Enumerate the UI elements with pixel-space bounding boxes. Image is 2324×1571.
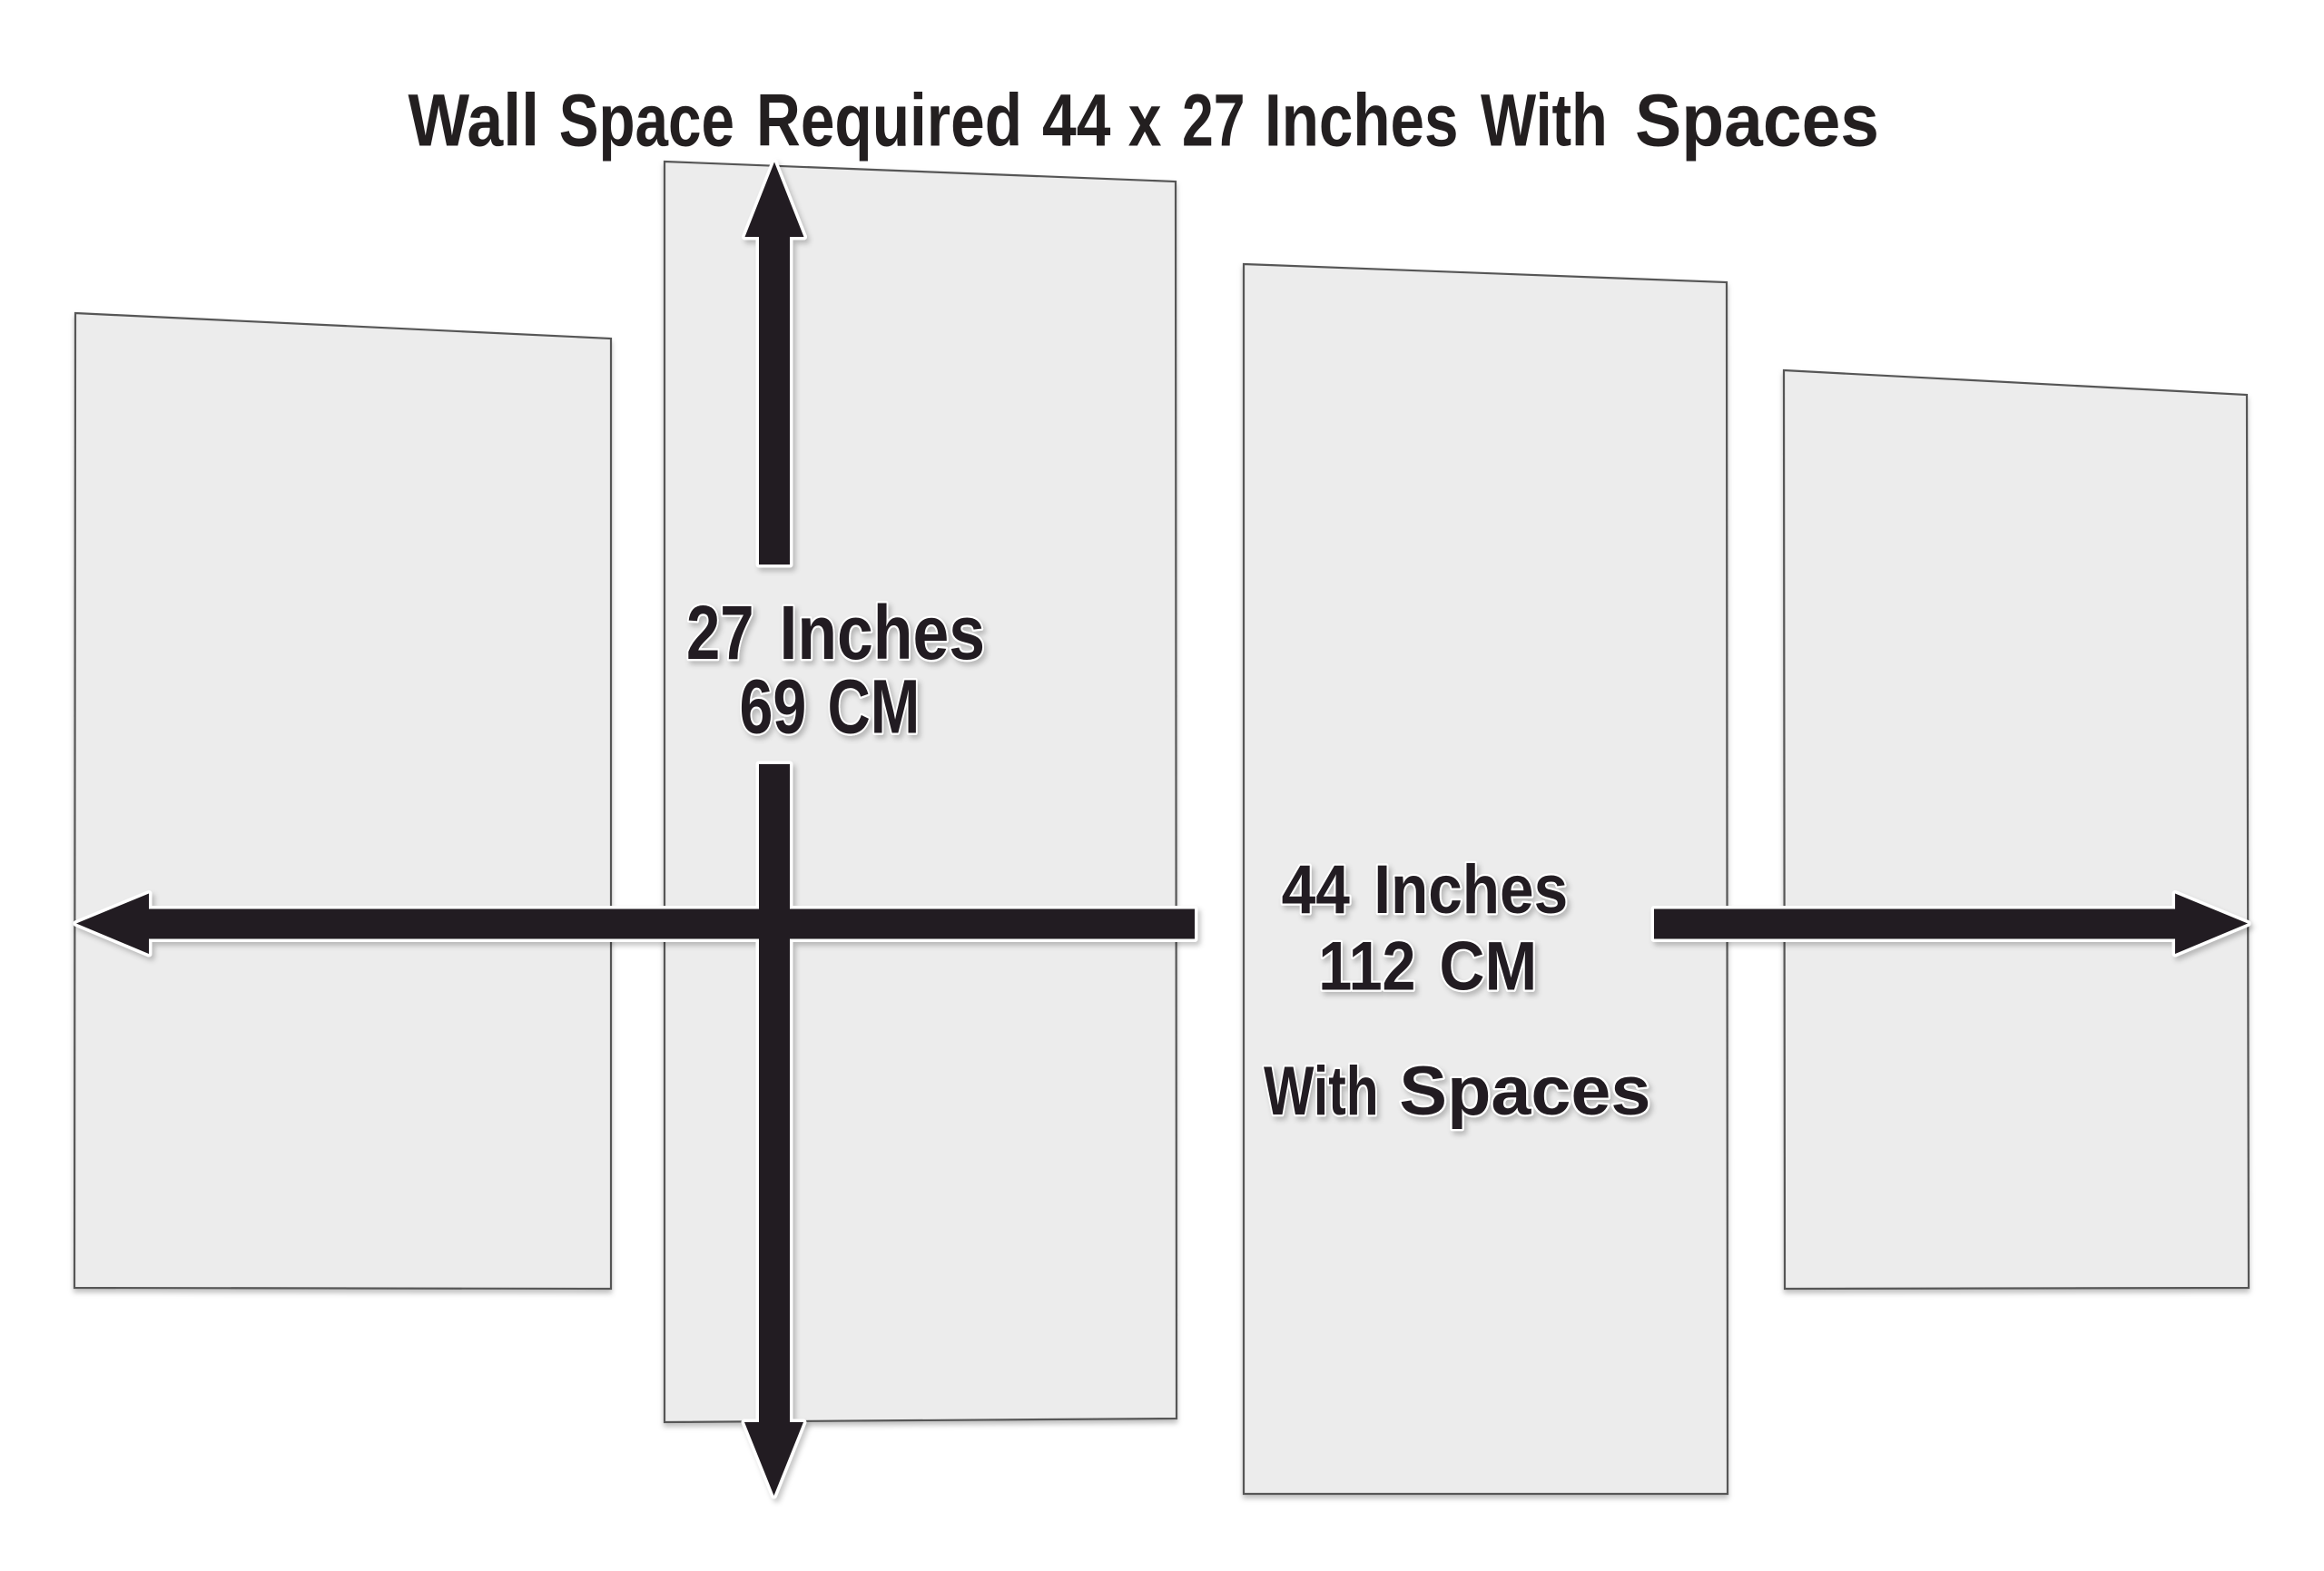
svg-text:Inches: Inches — [1265, 80, 1459, 162]
svg-text:112: 112 — [1318, 928, 1415, 1006]
svg-text:Required: Required — [756, 80, 1022, 162]
svg-text:With: With — [1481, 80, 1608, 162]
svg-text:Spaces: Spaces — [1635, 80, 1879, 162]
svg-text:Space: Space — [559, 80, 734, 162]
svg-text:CM: CM — [1439, 928, 1537, 1006]
svg-text:Spaces: Spaces — [1399, 1053, 1650, 1130]
svg-text:CM: CM — [828, 664, 921, 750]
svg-text:With: With — [1264, 1053, 1379, 1130]
svg-text:Wall: Wall — [409, 80, 540, 162]
svg-text:x: x — [1128, 80, 1162, 162]
svg-text:44: 44 — [1282, 851, 1350, 928]
svg-text:27: 27 — [686, 590, 754, 675]
svg-text:44: 44 — [1042, 80, 1110, 162]
svg-text:27: 27 — [1182, 80, 1246, 162]
svg-text:Inches: Inches — [780, 590, 986, 675]
svg-text:69: 69 — [740, 664, 807, 750]
svg-text:Inches: Inches — [1374, 851, 1568, 928]
